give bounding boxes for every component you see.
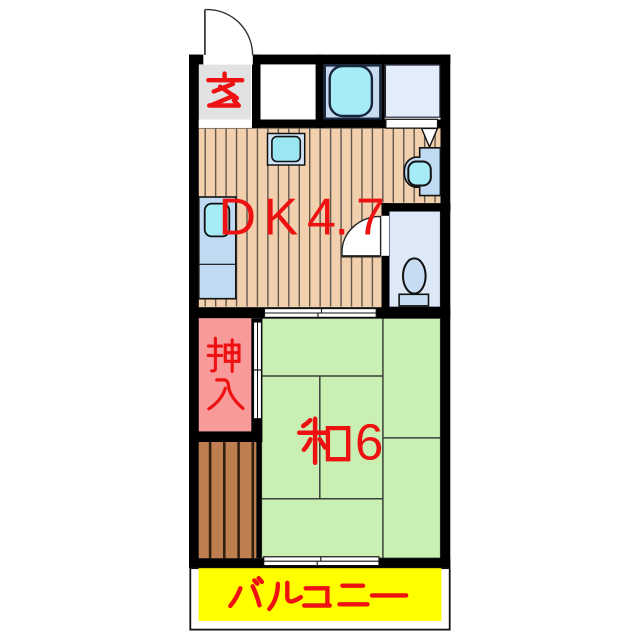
svg-text:.: . [335,189,349,247]
svg-text:7: 7 [356,189,385,247]
svg-text:D: D [219,189,257,247]
svg-text:K: K [264,189,299,247]
svg-text:6: 6 [355,414,383,471]
svg-text:4: 4 [307,189,336,247]
